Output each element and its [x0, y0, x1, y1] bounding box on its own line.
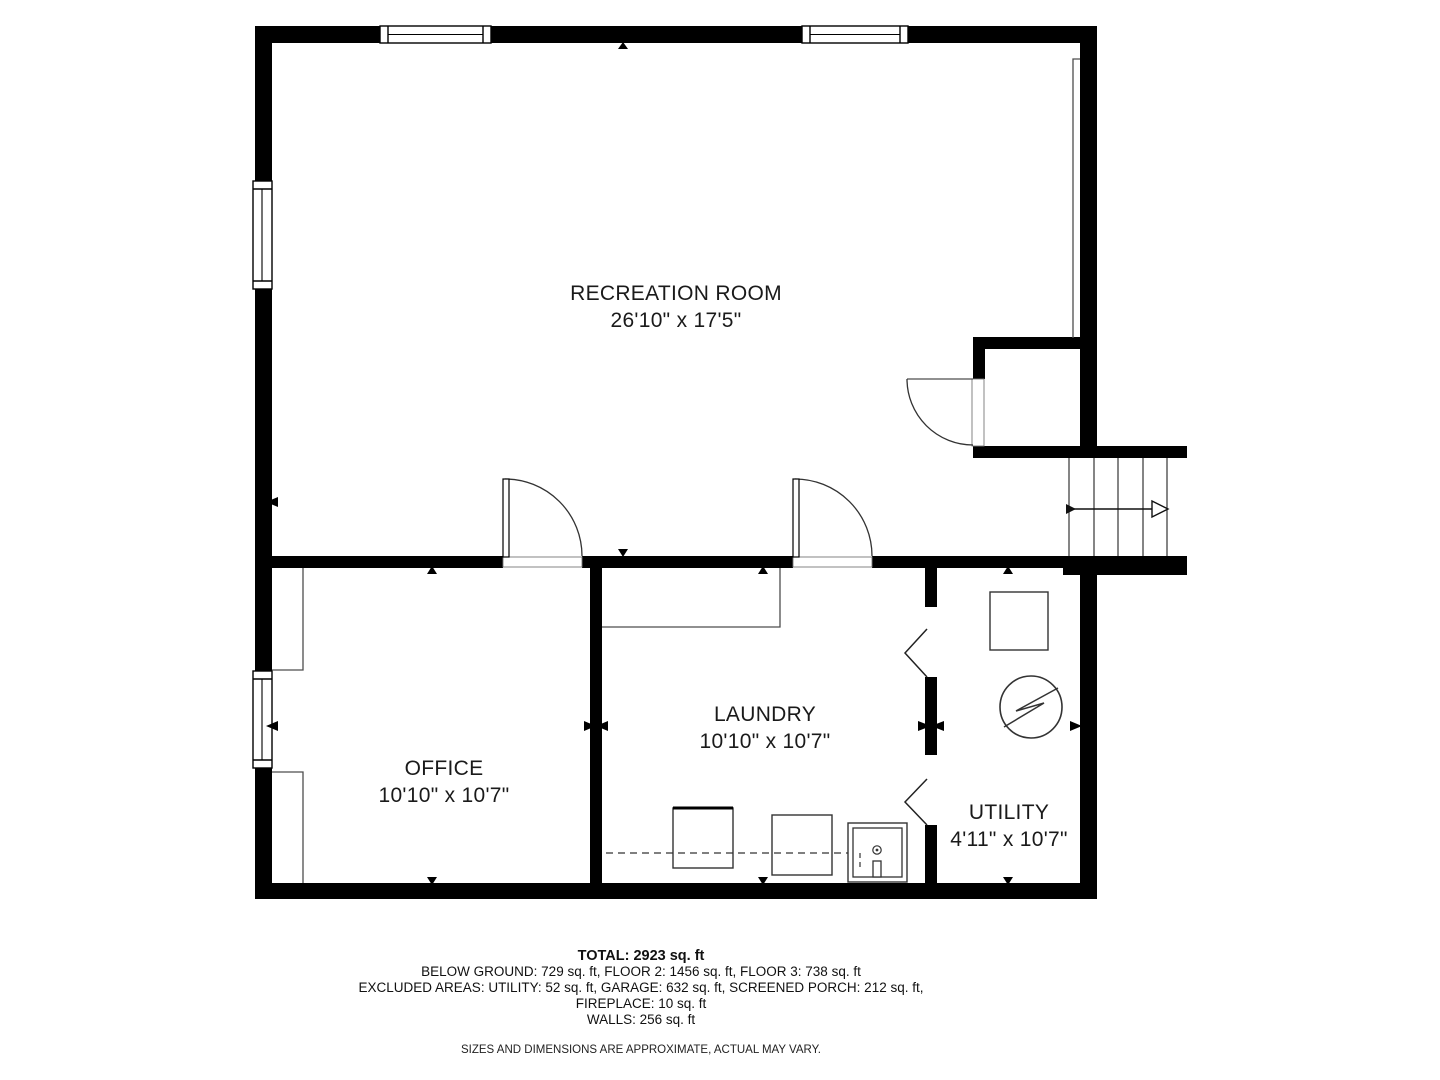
door-office	[503, 479, 582, 567]
faucet	[873, 861, 881, 877]
dryer-icon	[772, 815, 832, 875]
doors	[503, 379, 984, 825]
room-dimensions: 10'10" x 10'7"	[699, 728, 830, 755]
wall-laundry-utility-c	[925, 825, 937, 883]
door-nook	[907, 379, 984, 446]
door-leaf	[793, 479, 799, 557]
floor-plan-svg	[0, 0, 1440, 1080]
room-dimensions: 10'10" x 10'7"	[378, 782, 509, 809]
room-label-utility: UTILITY 4'11" x 10'7"	[950, 799, 1068, 853]
laundry-fixtures	[606, 808, 907, 882]
wall-nook-left	[973, 337, 985, 379]
wall-stairs-bottom	[1063, 556, 1187, 575]
summary-fireplace: FIREPLACE: 10 sq. ft	[359, 996, 924, 1012]
room-name: LAUNDRY	[699, 701, 830, 728]
right-wall-ledge-line	[1073, 59, 1080, 338]
door-bifold-lower	[905, 779, 927, 825]
sink-icon	[848, 823, 907, 882]
wall-bottom	[255, 883, 1097, 899]
window-left-office	[253, 671, 272, 768]
wall-rec-bottom-a	[255, 556, 503, 568]
furnace-icon	[1000, 676, 1062, 738]
floor-plan-page: { "rooms": [ {"name": "RECREATION ROOM",…	[0, 0, 1440, 1080]
wall-marker-icon	[618, 549, 628, 557]
summary-total: TOTAL: 2923 sq. ft	[359, 948, 924, 964]
window-top-right	[802, 26, 908, 43]
utility-fixtures	[990, 592, 1062, 738]
wall-right-lower	[1080, 556, 1097, 899]
washer-icon	[673, 808, 733, 868]
summary-walls: WALLS: 256 sq. ft	[359, 1012, 924, 1028]
room-name: OFFICE	[378, 755, 509, 782]
office-recess-upper-line	[272, 568, 303, 670]
summary-disclaimer: SIZES AND DIMENSIONS ARE APPROXIMATE, AC…	[359, 1042, 924, 1058]
door-leaf	[503, 479, 509, 557]
window-top-left	[380, 26, 491, 43]
room-label-laundry: LAUNDRY 10'10" x 10'7"	[699, 701, 830, 755]
window-left-recreation	[253, 181, 272, 289]
wall-right-upper	[1080, 26, 1097, 458]
wall-nook-top	[973, 337, 1097, 349]
summary-excluded: EXCLUDED AREAS: UTILITY: 52 sq. ft, GARA…	[359, 980, 924, 996]
door-laundry	[793, 479, 872, 567]
wall-marker-icon	[618, 42, 628, 49]
wall-laundry-utility-b	[925, 677, 937, 755]
wall-stairs-top	[973, 446, 1187, 458]
area-summary: TOTAL: 2923 sq. ft BELOW GROUND: 729 sq.…	[359, 948, 924, 1058]
wall-rec-bottom-b	[582, 556, 793, 568]
room-label-recreation: RECREATION ROOM 26'10" x 17'5"	[570, 280, 782, 334]
room-name: UTILITY	[950, 799, 1068, 826]
water-heater-icon	[990, 592, 1048, 650]
laundry-understair-line	[602, 568, 780, 627]
door-bifold-upper	[905, 629, 927, 677]
wall-laundry-utility-a	[925, 568, 937, 607]
room-label-office: OFFICE 10'10" x 10'7"	[378, 755, 509, 809]
office-recess-lower-line	[272, 772, 303, 883]
summary-floors: BELOW GROUND: 729 sq. ft, FLOOR 2: 1456 …	[359, 964, 924, 980]
room-name: RECREATION ROOM	[570, 280, 782, 307]
room-dimensions: 26'10" x 17'5"	[570, 307, 782, 334]
stairs	[1066, 458, 1168, 556]
windows	[253, 26, 908, 768]
stair-direction-arrow	[1066, 501, 1168, 517]
room-dimensions: 4'11" x 10'7"	[950, 826, 1068, 853]
